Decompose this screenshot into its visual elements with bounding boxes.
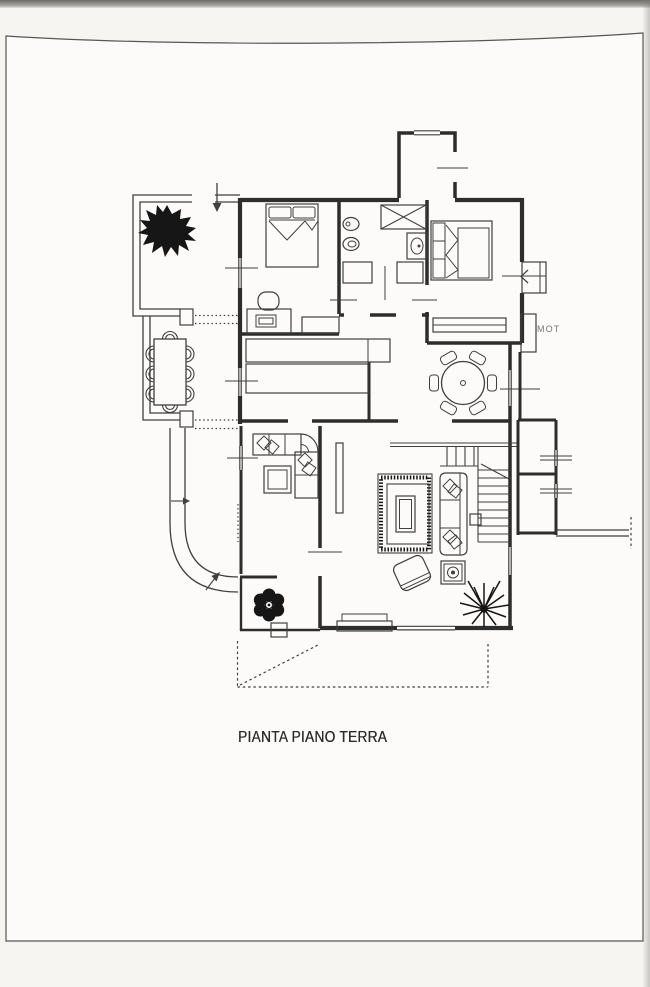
stove-dot — [451, 571, 455, 575]
scanned-floor-plan-page: PIANTA PIANO TERRA MOT — [0, 0, 650, 987]
scan-right-shade — [642, 0, 650, 987]
sheet-border-frame — [6, 33, 643, 941]
mot-label: MOT — [537, 324, 560, 334]
floor-plan-drawing — [0, 0, 650, 987]
sink-drain — [418, 245, 421, 248]
plan-title: PIANTA PIANO TERRA — [238, 729, 387, 747]
